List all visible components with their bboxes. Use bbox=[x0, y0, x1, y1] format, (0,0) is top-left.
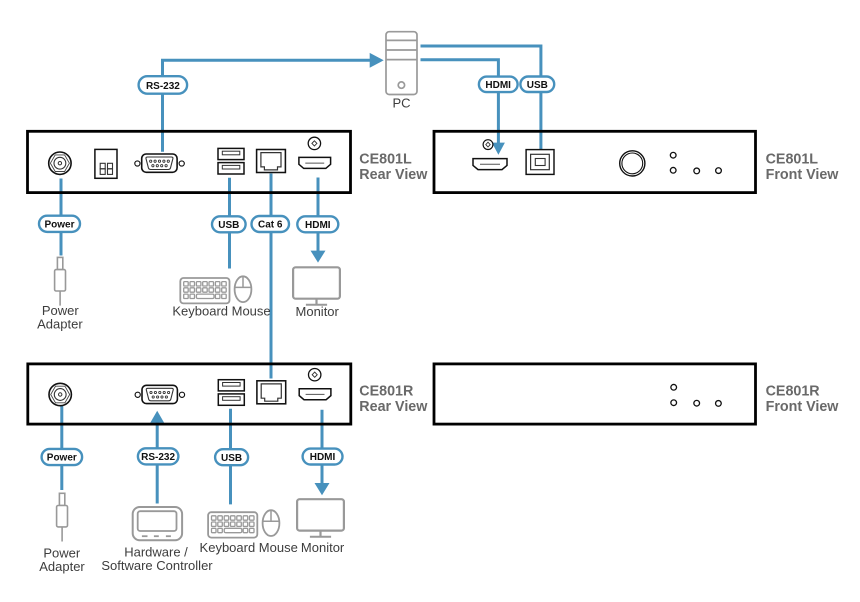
svg-text:Rear View: Rear View bbox=[359, 399, 428, 415]
svg-text:Software Controller: Software Controller bbox=[101, 558, 213, 573]
svg-text:USB: USB bbox=[221, 453, 242, 464]
svg-text:Adapter: Adapter bbox=[37, 316, 83, 331]
svg-text:HDMI: HDMI bbox=[485, 80, 511, 91]
svg-text:CE801R: CE801R bbox=[359, 383, 414, 399]
svg-text:Power: Power bbox=[44, 219, 74, 230]
svg-text:Monitor: Monitor bbox=[296, 304, 340, 319]
svg-text:Front View: Front View bbox=[766, 399, 840, 415]
svg-text:USB: USB bbox=[527, 80, 548, 91]
svg-text:RS-232: RS-232 bbox=[141, 452, 175, 463]
svg-text:Rear View: Rear View bbox=[359, 167, 428, 183]
svg-text:CE801R: CE801R bbox=[766, 383, 821, 399]
svg-text:CE801L: CE801L bbox=[359, 151, 412, 167]
svg-text:Keyboard Mouse: Keyboard Mouse bbox=[172, 304, 270, 319]
svg-text:Keyboard Mouse: Keyboard Mouse bbox=[200, 540, 298, 555]
svg-text:Adapter: Adapter bbox=[39, 559, 85, 574]
svg-text:HDMI: HDMI bbox=[305, 220, 331, 231]
svg-text:Power: Power bbox=[47, 453, 77, 464]
svg-text:Front View: Front View bbox=[766, 167, 840, 183]
svg-text:USB: USB bbox=[218, 220, 239, 231]
svg-text:Monitor: Monitor bbox=[301, 540, 345, 555]
svg-text:HDMI: HDMI bbox=[310, 452, 336, 463]
svg-text:Cat 6: Cat 6 bbox=[258, 220, 283, 231]
svg-text:RS-232: RS-232 bbox=[146, 81, 180, 92]
svg-text:CE801L: CE801L bbox=[766, 151, 819, 167]
svg-text:PC: PC bbox=[392, 95, 410, 110]
